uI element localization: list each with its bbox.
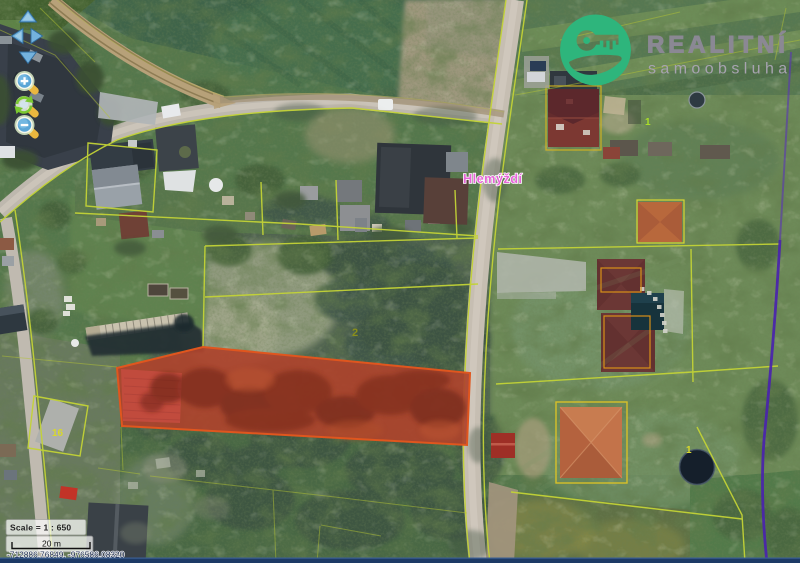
svg-text:1: 1 [686, 445, 692, 456]
svg-text:16: 16 [52, 428, 64, 439]
svg-text:Scale = 1 : 650: Scale = 1 : 650 [10, 523, 71, 533]
svg-text:20 m: 20 m [42, 539, 61, 549]
svg-text:REALITNÍ: REALITNÍ [647, 31, 789, 59]
svg-text:1: 1 [645, 117, 651, 128]
svg-text:samoobsluha: samoobsluha [648, 61, 792, 78]
svg-text:Hlemýždí: Hlemýždí [463, 171, 522, 186]
svg-text:2: 2 [352, 327, 358, 339]
